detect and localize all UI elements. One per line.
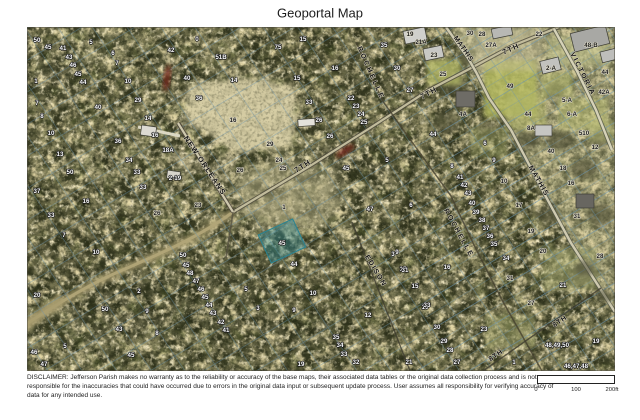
svg-text:34: 34 [503, 255, 510, 262]
svg-text:19: 19 [528, 228, 535, 235]
svg-text:30: 30 [434, 324, 441, 331]
svg-text:14: 14 [145, 115, 152, 122]
svg-text:6: 6 [483, 140, 487, 147]
svg-text:44: 44 [291, 261, 298, 268]
svg-text:7: 7 [115, 60, 119, 67]
svg-text:3: 3 [256, 305, 260, 312]
svg-text:responsible for the inaccuraci: responsible for the inaccuracies that co… [27, 383, 554, 390]
svg-text:9: 9 [492, 157, 496, 164]
svg-text:46: 46 [198, 286, 205, 293]
svg-text:20: 20 [34, 292, 41, 299]
svg-text:8: 8 [155, 330, 159, 337]
svg-text:40: 40 [548, 148, 555, 155]
svg-text:9: 9 [145, 308, 149, 315]
svg-text:28: 28 [447, 347, 454, 354]
svg-text:45: 45 [45, 44, 52, 51]
svg-text:1: 1 [512, 359, 516, 366]
svg-text:10: 10 [310, 290, 317, 297]
svg-text:42A: 42A [598, 89, 610, 96]
svg-text:25: 25 [361, 119, 368, 126]
svg-text:8: 8 [40, 113, 44, 120]
svg-text:31: 31 [507, 275, 514, 282]
svg-text:28: 28 [479, 31, 486, 38]
svg-text:41: 41 [60, 45, 67, 52]
svg-text:35: 35 [491, 241, 498, 248]
svg-text:45: 45 [343, 165, 350, 172]
svg-text:12: 12 [592, 144, 599, 151]
svg-text:42: 42 [218, 319, 225, 326]
svg-text:26: 26 [154, 210, 161, 217]
svg-text:44: 44 [80, 79, 87, 86]
svg-text:21A: 21A [415, 39, 427, 46]
svg-text:10: 10 [48, 130, 55, 137]
svg-text:49: 49 [507, 83, 514, 90]
svg-text:5: 5 [89, 39, 93, 46]
svg-text:6: 6 [111, 50, 115, 57]
svg-text:37: 37 [34, 188, 41, 195]
svg-text:2: 2 [137, 288, 141, 295]
svg-text:8A: 8A [527, 125, 535, 132]
svg-text:18: 18 [560, 165, 567, 172]
svg-text:43: 43 [465, 190, 472, 197]
svg-text:38: 38 [479, 217, 486, 224]
svg-text:100: 100 [571, 387, 581, 393]
svg-text:25: 25 [280, 165, 287, 172]
svg-text:40: 40 [184, 75, 191, 82]
svg-text:43: 43 [116, 326, 123, 333]
svg-text:34: 34 [126, 157, 133, 164]
svg-text:10: 10 [93, 249, 100, 256]
svg-text:DISCLAIMER: Jefferson Parish m: DISCLAIMER: Jefferson Parish makes no wa… [27, 374, 537, 381]
svg-text:2-A: 2-A [546, 65, 557, 72]
svg-text:21: 21 [560, 282, 567, 289]
svg-text:17: 17 [516, 202, 523, 209]
svg-text:18A: 18A [162, 147, 174, 154]
svg-text:32: 32 [353, 359, 360, 366]
svg-text:7: 7 [35, 100, 39, 107]
svg-text:Geoportal Map: Geoportal Map [277, 6, 363, 21]
svg-text:26: 26 [327, 133, 334, 140]
svg-text:35: 35 [333, 334, 340, 341]
svg-text:44: 44 [525, 111, 532, 118]
svg-text:25: 25 [440, 71, 447, 78]
svg-text:510: 510 [579, 130, 590, 137]
svg-text:30: 30 [394, 65, 401, 72]
svg-text:45: 45 [183, 262, 190, 269]
svg-text:37: 37 [483, 225, 490, 232]
svg-text:50: 50 [102, 306, 109, 313]
svg-text:200ft: 200ft [606, 387, 619, 393]
svg-text:33: 33 [134, 169, 141, 176]
svg-text:27A: 27A [485, 42, 497, 49]
svg-text:26: 26 [237, 167, 244, 174]
svg-text:22: 22 [536, 31, 543, 38]
svg-text:27: 27 [528, 300, 535, 307]
svg-text:27: 27 [407, 87, 414, 94]
svg-text:36: 36 [487, 233, 494, 240]
svg-text:29: 29 [135, 97, 142, 104]
svg-text:48: 48 [187, 270, 194, 277]
svg-text:16: 16 [83, 198, 90, 205]
svg-text:45: 45 [128, 352, 135, 359]
svg-text:33: 33 [306, 99, 313, 106]
svg-text:50: 50 [180, 252, 187, 259]
svg-text:42: 42 [168, 47, 175, 54]
svg-text:5: 5 [385, 157, 389, 164]
svg-text:48-B: 48-B [584, 42, 598, 49]
svg-text:75: 75 [275, 44, 282, 51]
svg-text:19: 19 [298, 361, 305, 368]
svg-text:16: 16 [568, 180, 575, 187]
svg-text:50: 50 [34, 37, 41, 44]
svg-text:20: 20 [540, 248, 547, 255]
svg-text:16: 16 [444, 264, 451, 271]
svg-text:2-19: 2-19 [169, 175, 182, 182]
svg-text:43: 43 [66, 54, 73, 61]
svg-text:40: 40 [469, 200, 476, 207]
svg-text:36: 36 [196, 95, 203, 102]
svg-text:24: 24 [276, 157, 283, 164]
svg-text:19: 19 [593, 338, 600, 345]
svg-text:9: 9 [395, 249, 399, 256]
svg-text:5-A: 5-A [562, 97, 573, 104]
svg-text:10: 10 [125, 78, 132, 85]
svg-text:23: 23 [431, 52, 438, 59]
svg-text:10: 10 [501, 178, 508, 185]
svg-text:50: 50 [67, 169, 74, 176]
svg-text:42: 42 [461, 182, 468, 189]
svg-text:46: 46 [31, 349, 38, 356]
svg-text:51B: 51B [215, 54, 227, 61]
svg-text:34: 34 [337, 342, 344, 349]
svg-text:19: 19 [407, 31, 414, 38]
svg-text:5: 5 [244, 286, 248, 293]
svg-text:1: 1 [34, 78, 38, 85]
svg-text:7: 7 [62, 232, 66, 239]
svg-text:15: 15 [294, 75, 301, 82]
svg-text:28: 28 [597, 253, 604, 260]
svg-text:12: 12 [365, 312, 372, 319]
svg-text:0: 0 [195, 36, 199, 43]
svg-text:31: 31 [402, 267, 409, 274]
svg-text:26: 26 [316, 117, 323, 124]
svg-text:47: 47 [41, 361, 48, 368]
svg-text:24: 24 [358, 111, 365, 118]
svg-text:13: 13 [57, 151, 64, 158]
svg-text:44: 44 [430, 131, 437, 138]
svg-text:4A: 4A [459, 111, 467, 118]
svg-text:41: 41 [223, 327, 230, 334]
svg-text:16: 16 [152, 132, 159, 139]
svg-text:36: 36 [115, 138, 122, 145]
svg-text:27: 27 [454, 359, 461, 366]
svg-text:16: 16 [230, 117, 237, 124]
svg-text:33: 33 [341, 351, 348, 358]
svg-text:6: 6 [409, 202, 413, 209]
svg-text:45: 45 [202, 294, 209, 301]
svg-text:47: 47 [193, 278, 200, 285]
svg-text:22: 22 [348, 95, 355, 102]
svg-text:21: 21 [406, 359, 413, 366]
svg-text:16: 16 [332, 65, 339, 72]
svg-text:48,49,50: 48,49,50 [545, 342, 570, 349]
svg-text:44: 44 [206, 302, 213, 309]
svg-text:47: 47 [367, 206, 374, 213]
svg-text:15: 15 [300, 36, 307, 43]
svg-text:6-A: 6-A [567, 111, 578, 118]
svg-text:23: 23 [195, 202, 202, 209]
svg-text:43: 43 [210, 310, 217, 317]
svg-text:46: 46 [70, 62, 77, 69]
svg-text:5: 5 [63, 343, 67, 350]
svg-text:44: 44 [602, 69, 609, 76]
svg-text:33: 33 [424, 302, 431, 309]
svg-text:29: 29 [441, 338, 448, 345]
svg-text:8: 8 [450, 163, 454, 170]
svg-text:data for any intended use.: data for any intended use. [27, 392, 102, 399]
svg-text:45: 45 [75, 71, 82, 78]
svg-text:46,47,48: 46,47,48 [564, 363, 589, 370]
svg-text:33: 33 [140, 184, 147, 191]
svg-text:39: 39 [473, 209, 480, 216]
svg-text:23: 23 [481, 326, 488, 333]
svg-text:33: 33 [48, 212, 55, 219]
svg-text:41: 41 [457, 174, 464, 181]
svg-text:29: 29 [267, 141, 274, 148]
svg-text:0: 0 [534, 387, 537, 393]
svg-text:30: 30 [467, 30, 474, 37]
svg-text:14: 14 [231, 77, 238, 84]
svg-text:15: 15 [412, 283, 419, 290]
svg-text:40: 40 [95, 104, 102, 111]
svg-text:9: 9 [292, 307, 296, 314]
svg-text:35: 35 [381, 42, 388, 49]
svg-text:45: 45 [279, 240, 286, 247]
svg-text:1: 1 [282, 204, 286, 211]
svg-text:31: 31 [574, 213, 581, 220]
svg-text:23: 23 [353, 103, 360, 110]
